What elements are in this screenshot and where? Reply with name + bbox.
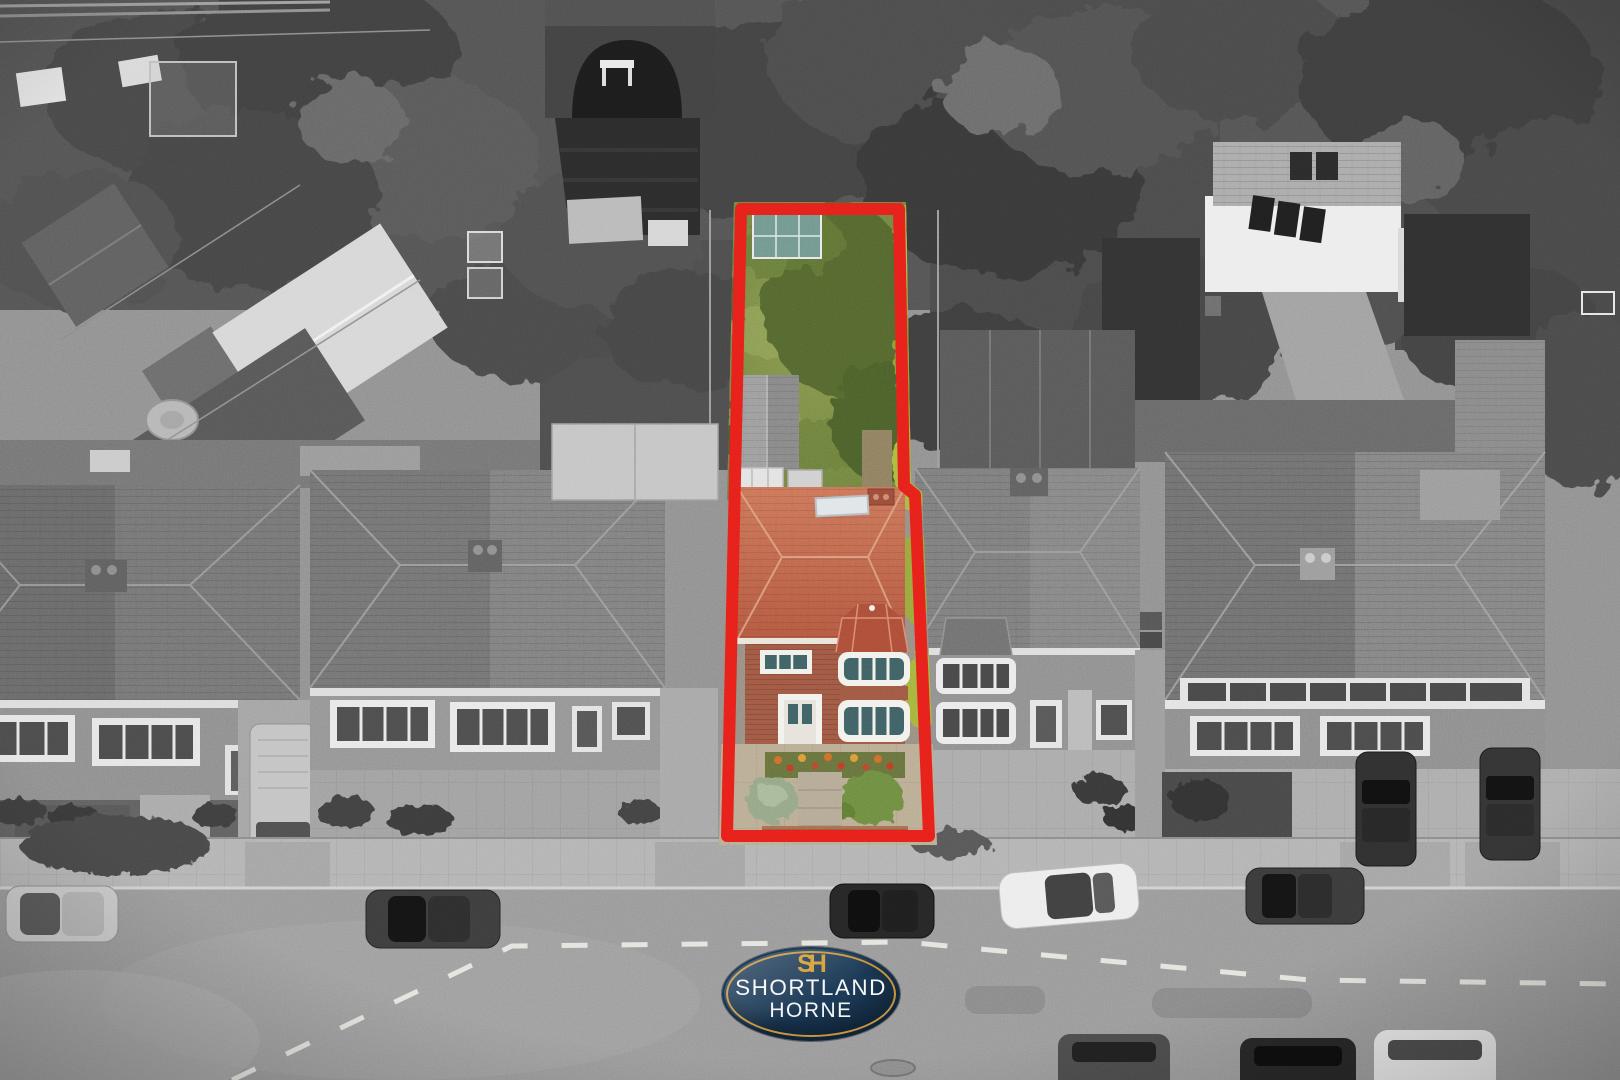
brand-name-line2: HORNE [769,1000,852,1022]
brand-monogram-icon: SH [800,953,822,975]
brand-badge: SH SHORTLAND HORNE [722,947,900,1041]
scene-svg [0,0,1620,1080]
brand-name-line1: SHORTLAND [735,975,887,1000]
vignette-overlay [0,0,1620,1080]
aerial-photo: SH SHORTLAND HORNE [0,0,1620,1080]
